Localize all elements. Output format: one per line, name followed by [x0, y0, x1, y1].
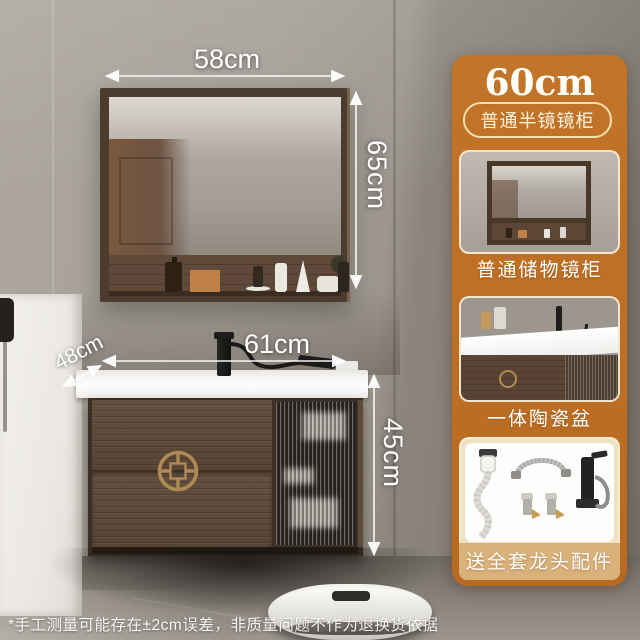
vanity-cabinet	[88, 398, 363, 556]
product-image: 58cm 65cm 61cm 48cm 45cm 60cm 普通半镜镜柜 普通储…	[0, 0, 640, 640]
amber-bottle-neck	[172, 257, 177, 263]
shower-fixture	[0, 298, 14, 342]
mirror-cabinet	[100, 88, 350, 302]
amber-bottle	[165, 262, 182, 292]
size-title: 60cm	[452, 62, 627, 104]
white-tube	[275, 263, 287, 292]
accessories-illustration	[465, 443, 614, 542]
thumb-mirror-reflection	[492, 180, 518, 218]
option-panel: 60cm 普通半镜镜柜 普通储物镜柜	[452, 55, 627, 586]
disclaimer-text: *手工测量可能存在±2cm误差，非质量问题不作为退换货依据	[8, 613, 448, 635]
shower-pipe	[3, 336, 7, 432]
brass-medallion-handle	[156, 449, 200, 493]
dimension-cabinet-height: 45cm	[377, 418, 408, 488]
thumb-item	[560, 227, 566, 238]
option-label-ceramic-basin: 一体陶瓷盆	[452, 404, 627, 431]
small-dark-bottle	[253, 266, 263, 287]
fluted-glass-door	[274, 400, 358, 547]
thumb-item	[518, 230, 527, 238]
vacuum-sensor	[332, 591, 370, 601]
glass-reeds-texture	[276, 402, 356, 545]
dimension-mirror-height: 65cm	[361, 140, 392, 210]
orange-box	[190, 270, 220, 292]
dark-bottle	[338, 262, 349, 292]
mirror-reflection-door-panel	[119, 157, 173, 245]
dimension-counter-width: 61cm	[231, 329, 323, 360]
faucet	[217, 336, 231, 376]
thumb-mirror	[492, 166, 586, 218]
thumb-mirror-cabinet-image	[487, 161, 591, 245]
open-shelf	[109, 255, 341, 296]
thumb-shelf	[492, 223, 586, 240]
option-label-faucet-accessories: 送全套龙头配件	[459, 543, 620, 580]
option-thumb-mirror-cabinet	[459, 150, 620, 254]
white-jar	[317, 276, 339, 292]
option-thumb-ceramic-basin	[459, 296, 620, 402]
thumb-bottle	[494, 307, 506, 329]
variant-badge: 普通半镜镜柜	[463, 102, 612, 138]
thumb-brass-handle	[499, 370, 517, 388]
thumb-bottle	[481, 312, 491, 329]
thumb-glass-door	[565, 355, 618, 402]
thumb-item	[544, 229, 550, 238]
wall-seam	[52, 0, 54, 330]
thumb-item	[506, 228, 512, 238]
option-label-mirror-cabinet: 普通储物镜柜	[452, 255, 627, 282]
mirror	[109, 97, 341, 255]
dimension-mirror-width: 58cm	[181, 44, 273, 75]
cabinet-side-panel	[358, 400, 363, 547]
mirror-reflection-door	[109, 139, 191, 255]
thumb-accessories-image	[465, 443, 614, 542]
